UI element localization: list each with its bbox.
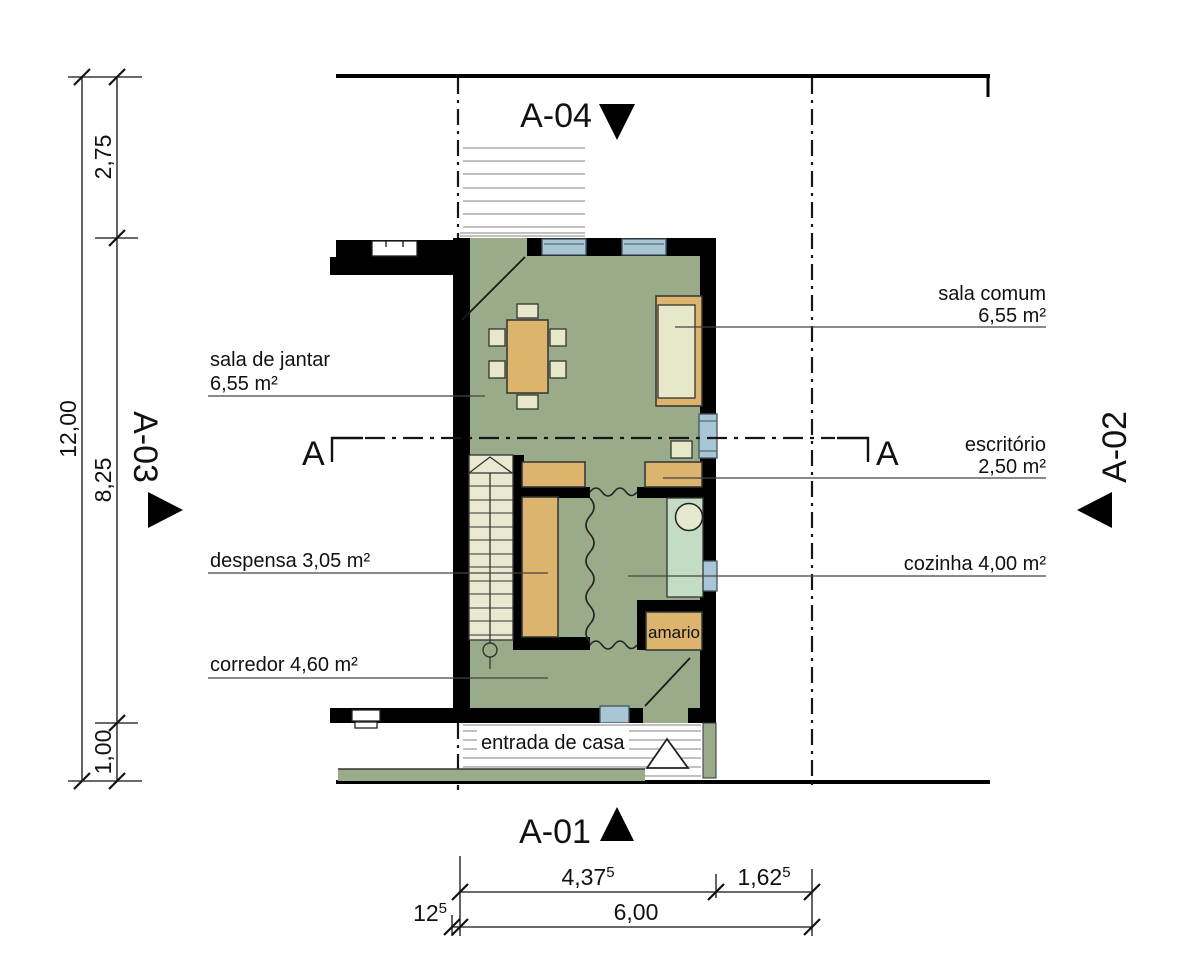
floor-plan-page: entrada de casa A A A-04 A-01 A-03 A-02 …	[0, 0, 1200, 955]
label-corredor: corredor 4,60 m²	[210, 654, 358, 676]
dim-left-total: 12,00	[55, 400, 81, 458]
pantry-shelf	[522, 497, 558, 637]
dining-chair-left-1	[489, 329, 505, 346]
top-window-2	[622, 239, 666, 255]
kitchen-sink	[676, 504, 703, 531]
entry-opening-floor	[643, 708, 688, 723]
entrance-label: entrada de casa	[481, 732, 625, 754]
despensa-wall-bottom	[513, 637, 590, 650]
label-despensa: despensa 3,05 m²	[210, 550, 370, 572]
wing-window-bottom	[352, 710, 380, 721]
section-cut-letter-left: A	[302, 435, 325, 473]
marker-a04-arrow-icon	[599, 104, 635, 140]
dim-left-mid: 8,25	[90, 458, 116, 503]
marker-a01-label: A-01	[519, 813, 591, 851]
sofa-cushion	[658, 305, 695, 398]
amario-wall-top	[637, 600, 703, 612]
terrace-door-opening	[470, 238, 527, 256]
marker-a02-label: A-02	[1096, 411, 1134, 483]
amario-wall-left	[637, 612, 646, 650]
section-cut-letter-right: A	[876, 435, 899, 473]
office-chair	[671, 441, 692, 458]
dimensions-bottom: 4,375 1,625 125 6,00	[413, 856, 820, 936]
office-desk	[645, 462, 702, 487]
staircase	[469, 455, 513, 669]
sideboard	[522, 462, 585, 487]
dining-table	[507, 320, 548, 393]
label-amario: amario	[648, 623, 700, 642]
section-cut-bracket-right	[837, 438, 868, 462]
garden-walkway	[338, 769, 645, 781]
dim-bottom-offset: 125	[413, 900, 447, 926]
terrace-deck	[460, 148, 585, 236]
dim-bottom-total: 6,00	[614, 899, 659, 925]
dim-bottom-seg2: 1,625	[737, 864, 790, 890]
section-cut-bracket-left	[332, 438, 363, 462]
marker-a02-arrow-icon	[1077, 492, 1112, 528]
marker-a01-arrow-icon	[600, 807, 634, 841]
stair-body	[469, 455, 513, 640]
label-sala-de-jantar-area: 6,55 m²	[210, 373, 278, 395]
wing-wall-top-lower	[330, 257, 460, 275]
marker-a04-label: A-04	[520, 97, 592, 135]
label-escritorio: escritório	[965, 434, 1046, 456]
marker-a03-label: A-03	[126, 411, 164, 483]
label-sala-comum-area: 6,55 m²	[978, 305, 1046, 327]
label-sala-de-jantar: sala de jantar	[210, 349, 330, 371]
dining-chair-left-2	[489, 361, 505, 378]
label-sala-comum: sala comum	[938, 283, 1046, 305]
entrance-door-glazed	[600, 706, 629, 723]
exterior-wall-left	[453, 238, 470, 723]
top-window-1	[542, 239, 586, 255]
dim-left-top: 2,75	[90, 135, 116, 180]
dim-bottom-seg1: 4,375	[561, 864, 614, 890]
floor-plan-drawing: entrada de casa A A A-04 A-01 A-03 A-02 …	[0, 0, 1200, 955]
wing-window-bottom-sill	[355, 722, 377, 728]
label-cozinha: cozinha 4,00 m²	[904, 553, 1047, 575]
dining-chair-bottom	[517, 395, 538, 409]
desk-wall	[637, 487, 703, 498]
dining-chair-top	[517, 304, 538, 318]
dining-chair-right-1	[550, 329, 566, 346]
label-escritorio-area: 2,50 m²	[978, 456, 1046, 478]
porch-side-planter	[703, 723, 716, 778]
entrance-porch: entrada de casa	[338, 723, 716, 781]
wing-window-top	[372, 241, 417, 256]
dining-chair-right-2	[550, 361, 566, 378]
marker-a03-arrow-icon	[148, 492, 183, 528]
dim-left-bottom: 1,00	[90, 730, 116, 775]
